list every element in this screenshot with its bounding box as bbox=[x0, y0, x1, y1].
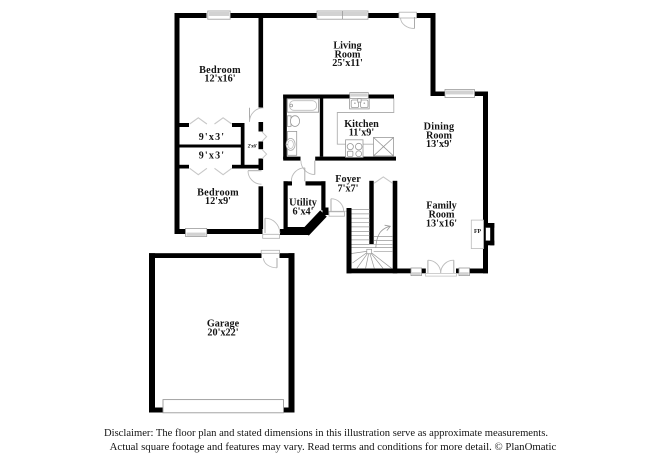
svg-text:Actual square footage and feat: Actual square footage and features may v… bbox=[110, 441, 557, 453]
svg-text:25'x11': 25'x11' bbox=[332, 58, 363, 69]
svg-text:12'x16': 12'x16' bbox=[204, 74, 235, 85]
svg-text:7'x7': 7'x7' bbox=[338, 184, 359, 195]
svg-text:20'x22': 20'x22' bbox=[207, 328, 238, 339]
svg-text:FP: FP bbox=[474, 229, 482, 235]
svg-text:2'x6': 2'x6' bbox=[248, 144, 258, 149]
svg-text:9'x3': 9'x3' bbox=[199, 150, 226, 161]
svg-text:9'x3': 9'x3' bbox=[199, 132, 226, 143]
svg-text:11'x9': 11'x9' bbox=[349, 128, 375, 139]
svg-text:13'x9': 13'x9' bbox=[426, 139, 452, 150]
svg-text:6'x4': 6'x4' bbox=[293, 207, 314, 218]
svg-text:12'x9': 12'x9' bbox=[205, 196, 231, 207]
svg-text:Disclaimer: The floor plan and: Disclaimer: The floor plan and stated di… bbox=[104, 428, 548, 439]
svg-text:13'x16': 13'x16' bbox=[426, 219, 457, 230]
